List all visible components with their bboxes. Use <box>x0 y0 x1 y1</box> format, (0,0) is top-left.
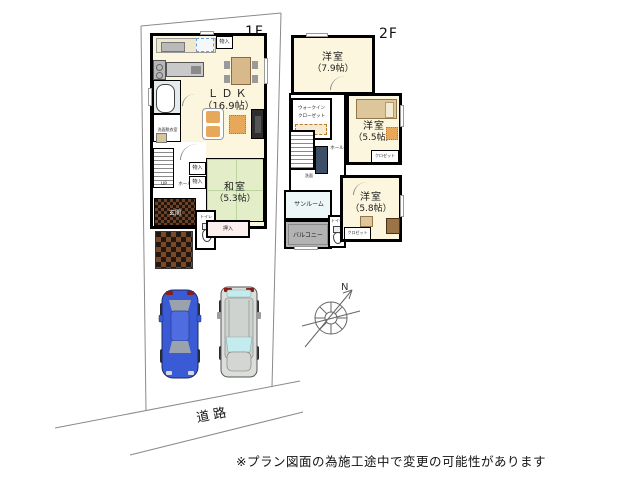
chair-icon <box>252 61 258 69</box>
storage-1f-top: 物入 <box>216 36 233 49</box>
wic-label-1: ウォークイン <box>294 106 329 111</box>
counter-sink <box>191 66 201 74</box>
washroom-1f: 洗面脱衣室 <box>153 114 181 142</box>
side-table-icon <box>386 127 398 140</box>
closet-55-label: クロゼット <box>375 154 395 158</box>
room-79-label: 洋室 （7.9帖） <box>294 52 372 74</box>
tv-screen <box>255 116 261 133</box>
bathtub-icon <box>156 84 175 113</box>
ldk-name: ＬＤＫ <box>193 88 264 101</box>
compass-icon <box>302 290 360 347</box>
kitchen-sink <box>161 42 185 52</box>
window-mark <box>294 246 318 250</box>
chair-icon <box>252 75 258 83</box>
room-79: 洋室 （7.9帖） <box>291 35 375 95</box>
dining-table <box>231 57 251 85</box>
room-79-size: （7.9帖） <box>294 64 372 74</box>
sunroom-label: サンルーム <box>287 199 331 208</box>
window-mark <box>400 105 404 127</box>
sofa <box>202 108 224 140</box>
washbasin-label: 洗面 <box>303 174 315 179</box>
closet-58: クロゼット <box>344 227 371 240</box>
genkan-entrance: 玄関 <box>154 198 196 226</box>
closet-55: クロゼット <box>371 150 399 163</box>
disclaimer-text: ※プラン図面の為施工途中で変更の可能性があります <box>236 451 546 470</box>
furniture-icon <box>360 216 373 227</box>
storage-1f-b: 物入 <box>189 176 206 189</box>
window-mark <box>306 33 328 37</box>
storage-1f-a: 物入 <box>189 162 206 175</box>
window-mark <box>148 88 152 106</box>
storage-1f-a-label: 物入 <box>192 166 202 172</box>
genkan-label: 玄関 <box>155 208 195 217</box>
burner-icon <box>156 64 163 71</box>
washbasin-counter <box>315 146 328 174</box>
car-silver-van <box>217 287 261 377</box>
door-arc <box>330 76 345 90</box>
oshiire-closet: 押入 <box>206 220 250 238</box>
sofa-cushion <box>206 126 220 137</box>
window-mark <box>400 195 404 217</box>
door-arc <box>353 182 367 195</box>
sunroom: サンルーム <box>284 190 332 220</box>
dresser-icon <box>386 218 400 234</box>
room-58-label: 洋室 （5.8帖） <box>343 192 399 214</box>
floor1-plan: 物入 洗面脱衣室 UP ホール 物入 物入 <box>150 33 267 229</box>
washitsu-label: 和室 （5.3帖） <box>207 182 263 204</box>
kitchen-counter <box>166 62 204 77</box>
washitsu-size: （5.3帖） <box>207 194 263 204</box>
ottoman-rug <box>229 115 246 134</box>
road-lines <box>55 381 303 455</box>
door-arc <box>182 94 195 106</box>
chair-icon <box>224 61 230 69</box>
kitchen-window-mark <box>196 38 214 52</box>
sofa-cushion <box>206 111 220 123</box>
stairs-up-label: UP <box>155 182 173 187</box>
storage-1f-b-label: 物入 <box>192 180 202 186</box>
window-mark <box>264 58 268 84</box>
chair-icon <box>224 75 230 83</box>
room-55: 洋室 （5.5帖） クロゼット <box>346 93 402 165</box>
oshiire-label: 押入 <box>208 227 248 233</box>
room-58: 洋室 （5.8帖） クロゼット <box>340 175 402 242</box>
room-79-name: 洋室 <box>294 52 372 64</box>
bed-icon <box>356 99 397 119</box>
tv-board <box>251 109 264 139</box>
window-mark <box>200 31 214 35</box>
balcony-label: バルコニー <box>286 230 330 239</box>
floor2-title: 2F <box>379 26 398 42</box>
pillow-icon <box>385 102 394 118</box>
room-58-name: 洋室 <box>343 192 399 204</box>
car-blue-sedan <box>159 290 201 378</box>
storage-1f-top-label: 物入 <box>219 40 229 46</box>
washing-machine-icon <box>156 133 167 143</box>
room-58-size: （5.8帖） <box>343 204 399 214</box>
wic-label-2: クローゼット <box>294 114 329 119</box>
closet-58-label: クロゼット <box>348 231 368 235</box>
stairs-2f <box>289 130 315 170</box>
washitsu-name: 和室 <box>207 182 263 194</box>
north-label: N <box>341 282 348 293</box>
entrance-porch <box>155 231 193 269</box>
hall-2f-label: ホール <box>328 146 346 151</box>
bathroom <box>153 80 181 114</box>
floorplan-page: N 1F 物入 洗面脱衣室 UP <box>0 0 640 480</box>
stove <box>153 60 166 80</box>
balcony: バルコニー <box>284 220 332 249</box>
burner-icon <box>156 72 163 79</box>
